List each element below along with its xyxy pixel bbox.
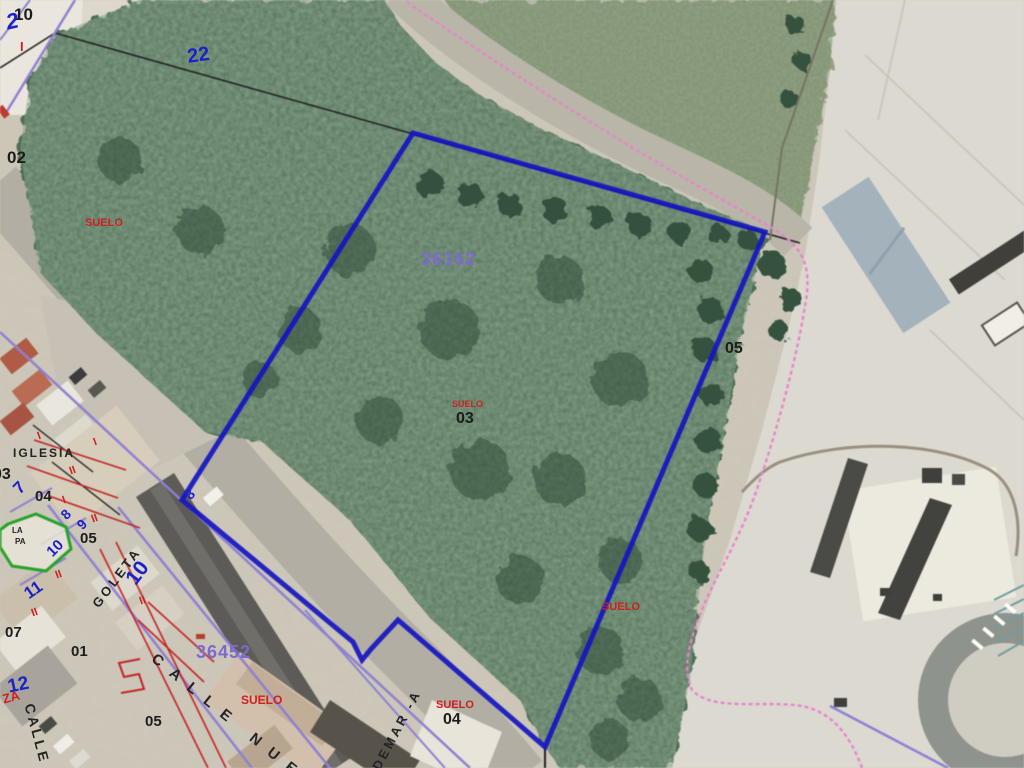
street-label-iglesia: IGLESIA [13,447,75,459]
green-zone-text-pa: PA [15,538,26,546]
zone-label-04-south: 04 [443,712,461,728]
suelo-label-5: SUELO [436,700,474,711]
roman-numeral: I [20,40,24,53]
aerial-imagery [0,0,1024,768]
parcel-number-36452: 36452 [196,643,251,661]
zone-label-05-left: 05 [80,531,97,546]
zone-label-03-left: 03 [0,467,11,483]
house-number-12: 12 [6,674,31,697]
aerial-map-canvas[interactable]: 10 02 03 04 05 07 01 05 03 05 04 IGLESIA… [0,0,1024,768]
zone-label-07: 07 [5,625,22,640]
suelo-label-3: SUELO [602,602,640,613]
zone-label-01: 01 [71,644,88,659]
zone-label-05-east: 05 [725,341,743,357]
house-number-22: 22 [186,44,211,67]
suelo-label-2: SUELO [452,400,483,409]
zone-label-04-left: 04 [35,489,52,504]
parcel-number-36162: 36162 [421,250,476,268]
zone-label-05-goleta: 05 [145,714,162,729]
zone-label-02: 02 [7,149,26,166]
suelo-label-4: SUELO [241,694,282,706]
zone-label-03-parcel: 03 [456,411,474,427]
suelo-label-1: SUELO [85,218,123,229]
green-zone-text-la: LA [12,527,23,535]
